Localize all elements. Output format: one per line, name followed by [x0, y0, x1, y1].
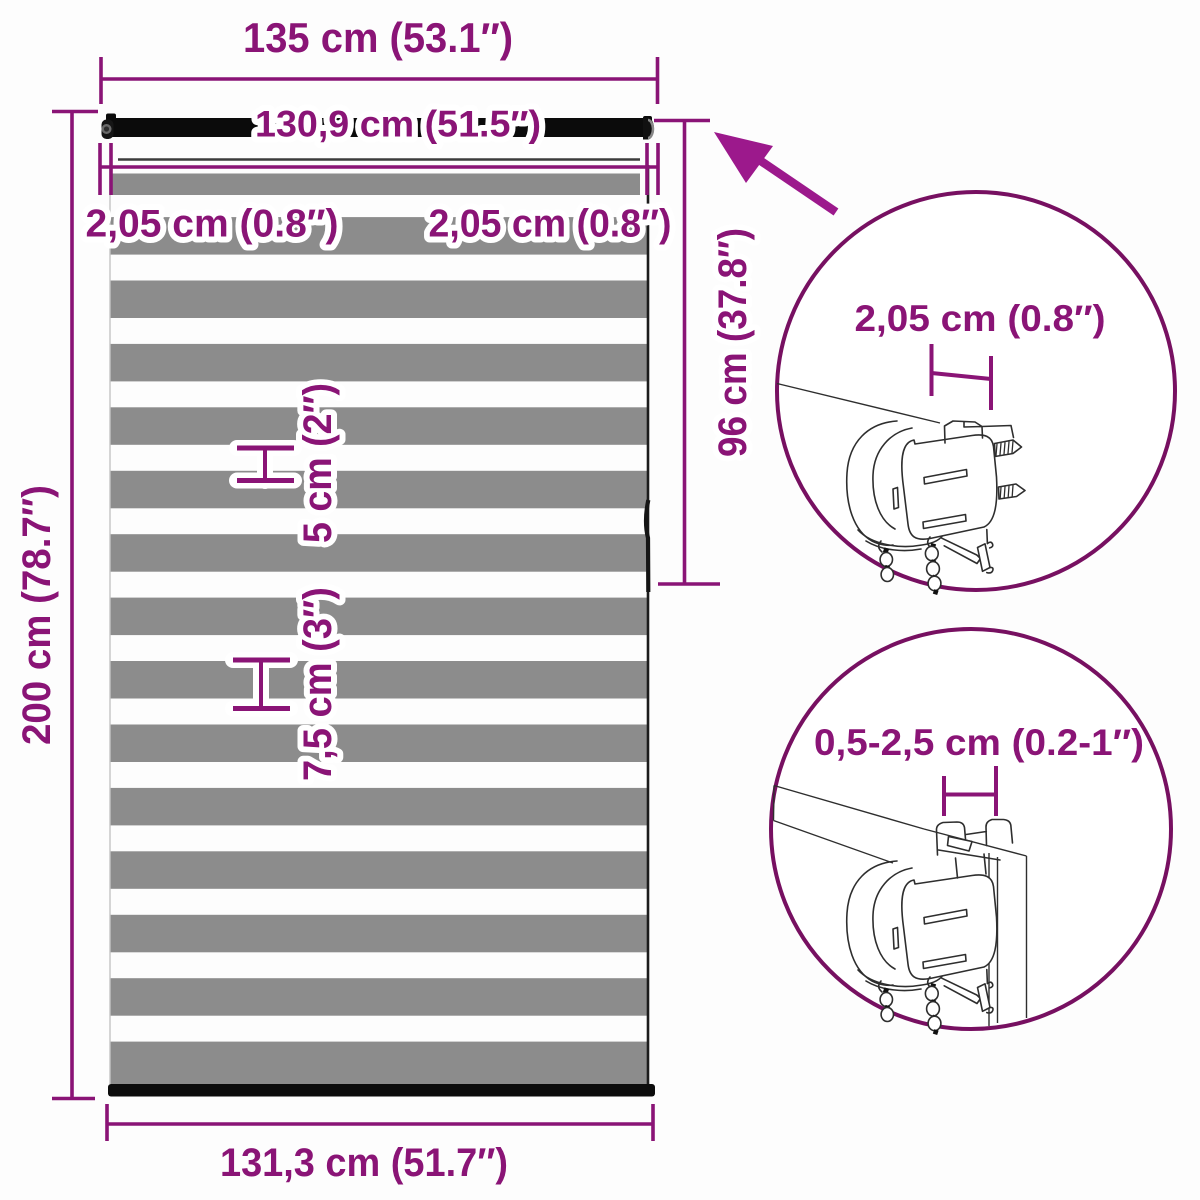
svg-text:96 cm (37.8″): 96 cm (37.8″)	[711, 228, 755, 457]
svg-text:2,05 cm (0.8″): 2,05 cm (0.8″)	[86, 203, 339, 246]
svg-text:135 cm (53.1″): 135 cm (53.1″)	[243, 14, 513, 61]
svg-text:5 cm (2″): 5 cm (2″)	[296, 383, 340, 543]
svg-text:7,5 cm (3″): 7,5 cm (3″)	[296, 587, 340, 781]
svg-text:131,3 cm (51.7″): 131,3 cm (51.7″)	[220, 1141, 508, 1185]
svg-text:130,9 cm (51.5″): 130,9 cm (51.5″)	[255, 104, 541, 145]
svg-text:2,05 cm (0.8″): 2,05 cm (0.8″)	[429, 203, 672, 246]
svg-text:2,05 cm (0.8″): 2,05 cm (0.8″)	[855, 298, 1106, 339]
svg-text:0,5-2,5 cm (0.2-1″): 0,5-2,5 cm (0.2-1″)	[814, 722, 1144, 763]
svg-text:200 cm (78.7″): 200 cm (78.7″)	[15, 485, 59, 745]
